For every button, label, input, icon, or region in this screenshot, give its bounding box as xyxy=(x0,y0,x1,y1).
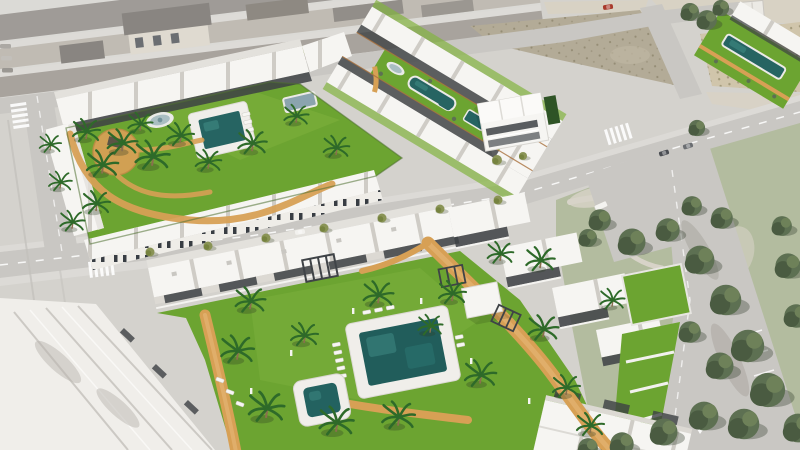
render-canvas xyxy=(0,0,800,450)
garden-panel xyxy=(622,264,691,325)
aerial-render-image xyxy=(0,0,800,450)
jacuzzi-pool xyxy=(292,372,352,427)
